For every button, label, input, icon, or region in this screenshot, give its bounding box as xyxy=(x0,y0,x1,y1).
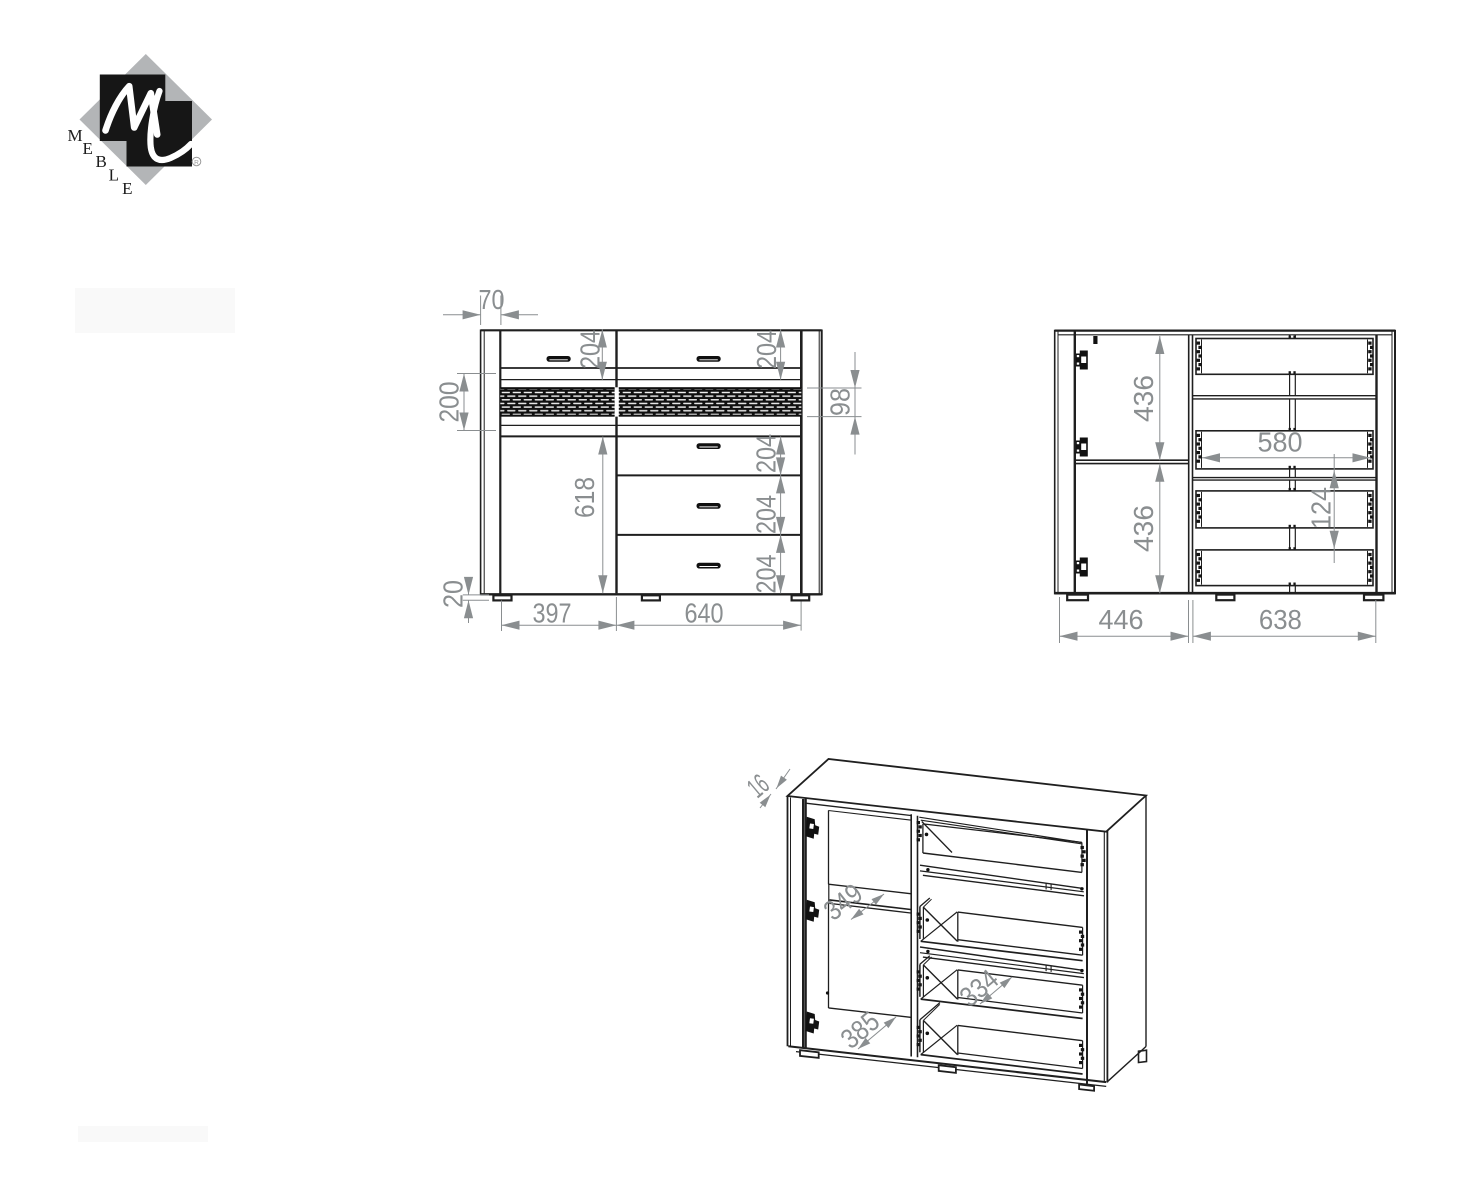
svg-text:70: 70 xyxy=(479,284,505,315)
svg-text:618: 618 xyxy=(569,477,600,518)
svg-text:E: E xyxy=(83,139,93,158)
svg-text:E: E xyxy=(122,179,132,198)
svg-text:446: 446 xyxy=(1099,604,1144,635)
svg-text:L: L xyxy=(109,165,119,184)
svg-text:R: R xyxy=(194,160,199,167)
svg-text:397: 397 xyxy=(533,598,572,629)
svg-text:640: 640 xyxy=(685,598,724,629)
svg-text:204: 204 xyxy=(751,330,782,369)
svg-text:124: 124 xyxy=(1305,487,1336,529)
svg-text:204: 204 xyxy=(751,434,782,473)
svg-text:204: 204 xyxy=(751,555,782,594)
svg-text:580: 580 xyxy=(1258,427,1303,458)
svg-text:436: 436 xyxy=(1128,375,1159,422)
svg-text:436: 436 xyxy=(1128,505,1159,552)
svg-text:20: 20 xyxy=(437,580,468,608)
svg-text:B: B xyxy=(96,152,107,171)
svg-text:204: 204 xyxy=(575,330,606,369)
svg-text:204: 204 xyxy=(751,495,782,534)
svg-text:638: 638 xyxy=(1259,604,1302,635)
svg-text:200: 200 xyxy=(434,382,465,423)
svg-text:M: M xyxy=(67,126,82,145)
svg-text:98: 98 xyxy=(825,388,856,416)
